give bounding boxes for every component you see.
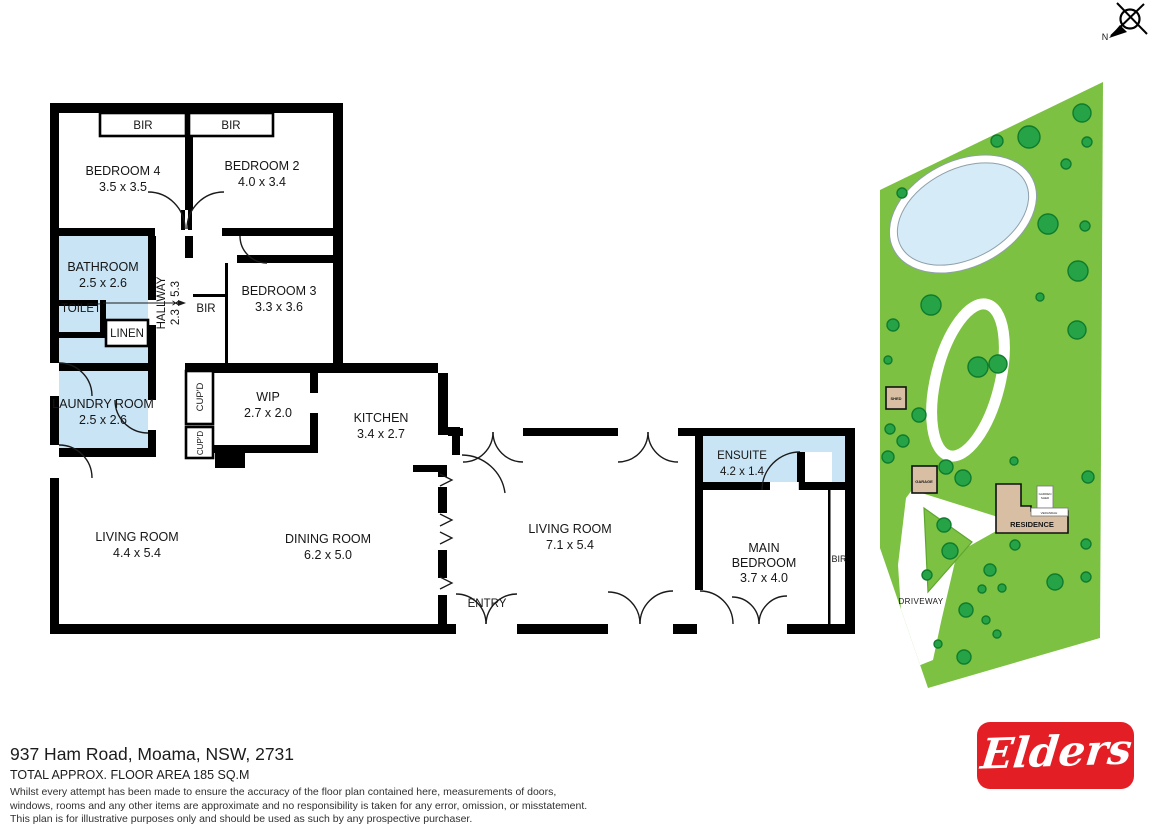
- label-bir-hallway: BIR: [196, 303, 215, 315]
- label-toilet: TOILET: [61, 303, 101, 315]
- dims-bedroom4: 3.5 x 3.5: [99, 180, 147, 194]
- address-line: 937 Ham Road, Moama, NSW, 2731: [10, 744, 587, 765]
- dims-laundry: 2.5 x 2.6: [79, 413, 127, 427]
- dims-wip: 2.7 x 2.0: [244, 406, 292, 420]
- label-bir-top-left: BIR: [133, 120, 152, 132]
- dims-bedroom2: 4.0 x 3.4: [238, 175, 286, 189]
- label-dining: DINING ROOM: [285, 532, 371, 546]
- compass: N: [1102, 3, 1147, 42]
- dims-living2: 7.1 x 5.4: [546, 538, 594, 552]
- label-garden-shed-2: SHED: [1041, 496, 1050, 500]
- label-garage: GARAGE: [915, 479, 933, 484]
- label-main-bedroom-1: MAIN: [748, 541, 779, 555]
- elders-logo-text: Elders: [978, 728, 1134, 783]
- label-main-bedroom-2: BEDROOM: [732, 556, 797, 570]
- footer: 937 Ham Road, Moama, NSW, 2731 TOTAL APP…: [10, 744, 587, 827]
- dims-main-bedroom: 3.7 x 4.0: [740, 571, 788, 585]
- dims-bathroom: 2.5 x 2.6: [79, 276, 127, 290]
- dims-living1: 4.4 x 5.4: [113, 546, 161, 560]
- label-kitchen: KITCHEN: [354, 411, 409, 425]
- label-living2: LIVING ROOM: [528, 522, 611, 536]
- label-hallway: HALLWAY: [156, 276, 168, 329]
- label-bir-top-right: BIR: [221, 120, 240, 132]
- label-cupboard1: CUP'D: [195, 382, 206, 411]
- door-arcs: [59, 192, 800, 624]
- label-laundry: LAUNDRY ROOM: [52, 397, 154, 411]
- elders-logo: Elders: [977, 722, 1134, 789]
- label-living1: LIVING ROOM: [95, 530, 178, 544]
- walls: [50, 103, 855, 634]
- dims-bedroom3: 3.3 x 3.6: [255, 300, 303, 314]
- label-bedroom4: BEDROOM 4: [85, 164, 160, 178]
- disclaimer-line-1: Whilst every attempt has been made to en…: [10, 786, 587, 800]
- label-verandah: VERANDAH: [1041, 511, 1058, 515]
- label-bedroom2: BEDROOM 2: [224, 159, 299, 173]
- dims-ensuite: 4.2 x 1.4: [720, 466, 765, 478]
- dims-hallway: 2.3 x 5.3: [170, 281, 182, 325]
- label-bir-main: BIR: [831, 554, 847, 564]
- disclaimer-line-3: This plan is for illustrative purposes o…: [10, 813, 587, 827]
- label-bathroom: BATHROOM: [67, 260, 138, 274]
- floorplan-page: N BIR BIR BEDROOM 4 3.5 x 3.5 BEDROOM 2 …: [0, 0, 1150, 814]
- north-label: N: [1102, 32, 1109, 42]
- dims-kitchen: 3.4 x 2.7: [357, 427, 405, 441]
- label-wip: WIP: [256, 390, 280, 404]
- label-ensuite: ENSUITE: [717, 450, 767, 462]
- label-bedroom3: BEDROOM 3: [241, 284, 316, 298]
- label-driveway: DRIVEWAY: [899, 597, 944, 606]
- dims-dining: 6.2 x 5.0: [304, 548, 352, 562]
- label-cupboard2: CUP'D: [196, 431, 205, 455]
- floor-area-line: TOTAL APPROX. FLOOR AREA 185 SQ.M: [10, 768, 587, 782]
- plan-svg: N BIR BIR BEDROOM 4 3.5 x 3.5 BEDROOM 2 …: [0, 0, 1150, 814]
- disclaimer-line-2: windows, rooms and any other items are a…: [10, 800, 587, 814]
- label-linen: LINEN: [110, 328, 144, 340]
- label-residence: RESIDENCE: [1010, 520, 1054, 529]
- label-shed: SHED: [890, 396, 901, 401]
- label-entry: ENTRY: [468, 598, 507, 610]
